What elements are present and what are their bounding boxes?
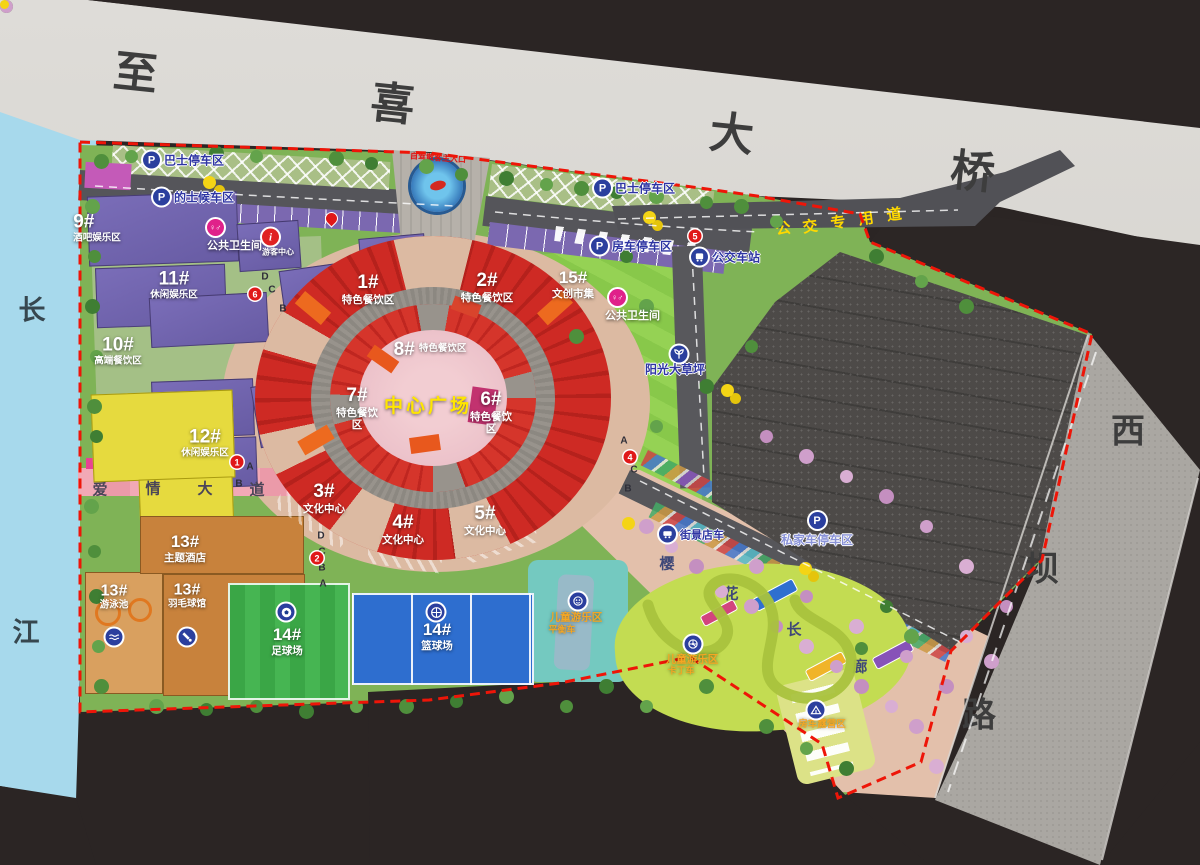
bus-icon — [691, 249, 708, 266]
gate-letter: D — [317, 531, 324, 542]
basketball-icon — [428, 604, 445, 621]
bridge-name-char: 喜 — [368, 66, 418, 134]
west-road-char: 西 — [1111, 404, 1145, 453]
west-road-char: 路 — [962, 688, 996, 737]
gate-letter: B — [624, 484, 631, 495]
zone-6-label: 6#特色餐饮区 — [467, 389, 515, 435]
zone-4-label: 4#文化中心 — [382, 512, 424, 546]
gate-letter: A — [620, 436, 627, 447]
gate-letter: B — [235, 479, 242, 490]
west-road-char: 坝 — [1025, 542, 1059, 591]
zone-13-hotel-label: 13#主题酒店 — [164, 532, 206, 564]
visitor-center-label: i 游客中心 — [262, 229, 294, 258]
toilet-right-label: ♀♂ 公共卫生间 — [605, 289, 660, 323]
flower-clusters — [0, 0, 9, 9]
zone-14-basketball-label: 14#篮球场 — [421, 620, 453, 652]
gate-letter: B — [318, 563, 325, 574]
zone-2-label: 2#特色餐饮区 — [461, 270, 514, 304]
flower-strip — [84, 162, 131, 190]
bus-lane-char: 道 — [885, 203, 903, 226]
bus-parking-right-label: P 巴士停车区 — [594, 180, 675, 197]
bus-parking-left-label: P 巴士停车区 — [143, 152, 224, 169]
zone-15-label: 15#文创市集 — [552, 268, 594, 300]
parking-icon: P — [143, 152, 160, 169]
kids-balance-sub: 平衡车 — [548, 623, 575, 636]
parking-icon: P — [594, 180, 611, 197]
river-name-char: 江 — [13, 611, 40, 650]
gate-number-marker: 5 — [689, 230, 702, 243]
taxi-waiting-label: P 的士候车区 — [153, 189, 234, 206]
cherry-corridor-char: 樱 — [659, 553, 674, 574]
rv-camp-label: 房车露营区 — [798, 716, 846, 730]
camp-icon — [808, 702, 825, 719]
bridge-name-char: 大 — [707, 96, 757, 164]
parking-icon: P — [591, 238, 608, 255]
bus-station-label: 公交车站 — [691, 249, 760, 266]
kids-kart-sub: 卡丁车 — [667, 664, 694, 677]
gate-letter: D — [261, 272, 268, 283]
cherry-corridor-char: 廊 — [852, 656, 867, 677]
gate-letter: C — [630, 465, 637, 476]
gate-letter: B — [279, 304, 286, 315]
badminton-icon — [179, 629, 196, 646]
zone-5-label: 5#文化中心 — [464, 503, 506, 537]
pool-ring — [128, 598, 152, 622]
info-icon: i — [262, 229, 279, 246]
lawn-label: 阳光大草坪 — [645, 361, 705, 378]
bus-lane-char: 专 — [829, 211, 847, 234]
swimming-icon — [106, 629, 123, 646]
love-avenue-char: 道 — [249, 479, 264, 500]
river-name-char: 长 — [19, 289, 46, 328]
love-avenue-char: 爱 — [92, 479, 107, 500]
bridge-name-char: 桥 — [948, 134, 998, 202]
zone-1-label: 1#特色餐饮区 — [342, 272, 395, 306]
site-plan-map: 至 喜 大 桥 长 江 西 坝 路 公 交 专 用 道 爱 情 大 道 樱 花 … — [0, 0, 1200, 865]
love-avenue-char: 情 — [145, 478, 160, 499]
bridge-name-char: 至 — [111, 35, 161, 103]
bus-lane-char: 交 — [801, 215, 819, 238]
private-parking-label: P 私家车停车区 — [781, 512, 853, 548]
toilet-left-label: ♀♂ 公共卫生间 — [207, 219, 262, 253]
zone-11-label: 11#休闲娱乐区 — [150, 269, 198, 302]
zone-8-label: 8#特色餐饮区 — [394, 339, 467, 361]
toilet-icon: ♀♂ — [609, 289, 626, 306]
bus-lane-char: 用 — [857, 207, 875, 230]
zone-14-soccer-label: 14#足球场 — [271, 625, 303, 657]
street-cart-label: 街景店车 — [659, 526, 724, 543]
gate-letter: A — [246, 462, 253, 473]
gate-letter: C — [268, 285, 275, 296]
gate-number-marker: 4 — [624, 451, 637, 464]
toilet-icon: ♀♂ — [207, 219, 224, 236]
zone-13-badminton-label: 13#羽毛球馆 — [168, 581, 206, 610]
zone-7-label: 7#特色餐饮区 — [333, 385, 381, 431]
kids-icon — [685, 636, 702, 653]
zone-3-label: 3#文化中心 — [303, 481, 345, 515]
gate-letter: A — [319, 579, 326, 590]
zone-9-label: 9#酒吧娱乐区 — [73, 212, 121, 245]
parking-icon: P — [153, 189, 170, 206]
love-avenue-char: 大 — [197, 478, 212, 499]
gate-number-marker: 2 — [311, 552, 324, 565]
cherry-corridor-char: 长 — [786, 619, 801, 640]
gate-number-marker: 1 — [231, 456, 244, 469]
central-plaza-label: 中心广场 — [384, 396, 472, 418]
zone-10-label: 10#高端餐饮区 — [94, 335, 142, 368]
cherry-corridor-char: 花 — [723, 583, 738, 604]
zone-12-label: 12#休闲娱乐区 — [181, 427, 229, 460]
rv-parking-label: P 房车停车区 — [591, 238, 672, 255]
gate-number-marker: 6 — [249, 288, 262, 301]
cart-icon — [659, 526, 676, 543]
bus-lane-char: 公 — [774, 217, 792, 240]
kids-icon — [570, 593, 587, 610]
zone-13-pool-label: 13#游泳池 — [100, 582, 129, 611]
parking-icon: P — [808, 512, 825, 529]
soccer-icon — [278, 604, 295, 621]
